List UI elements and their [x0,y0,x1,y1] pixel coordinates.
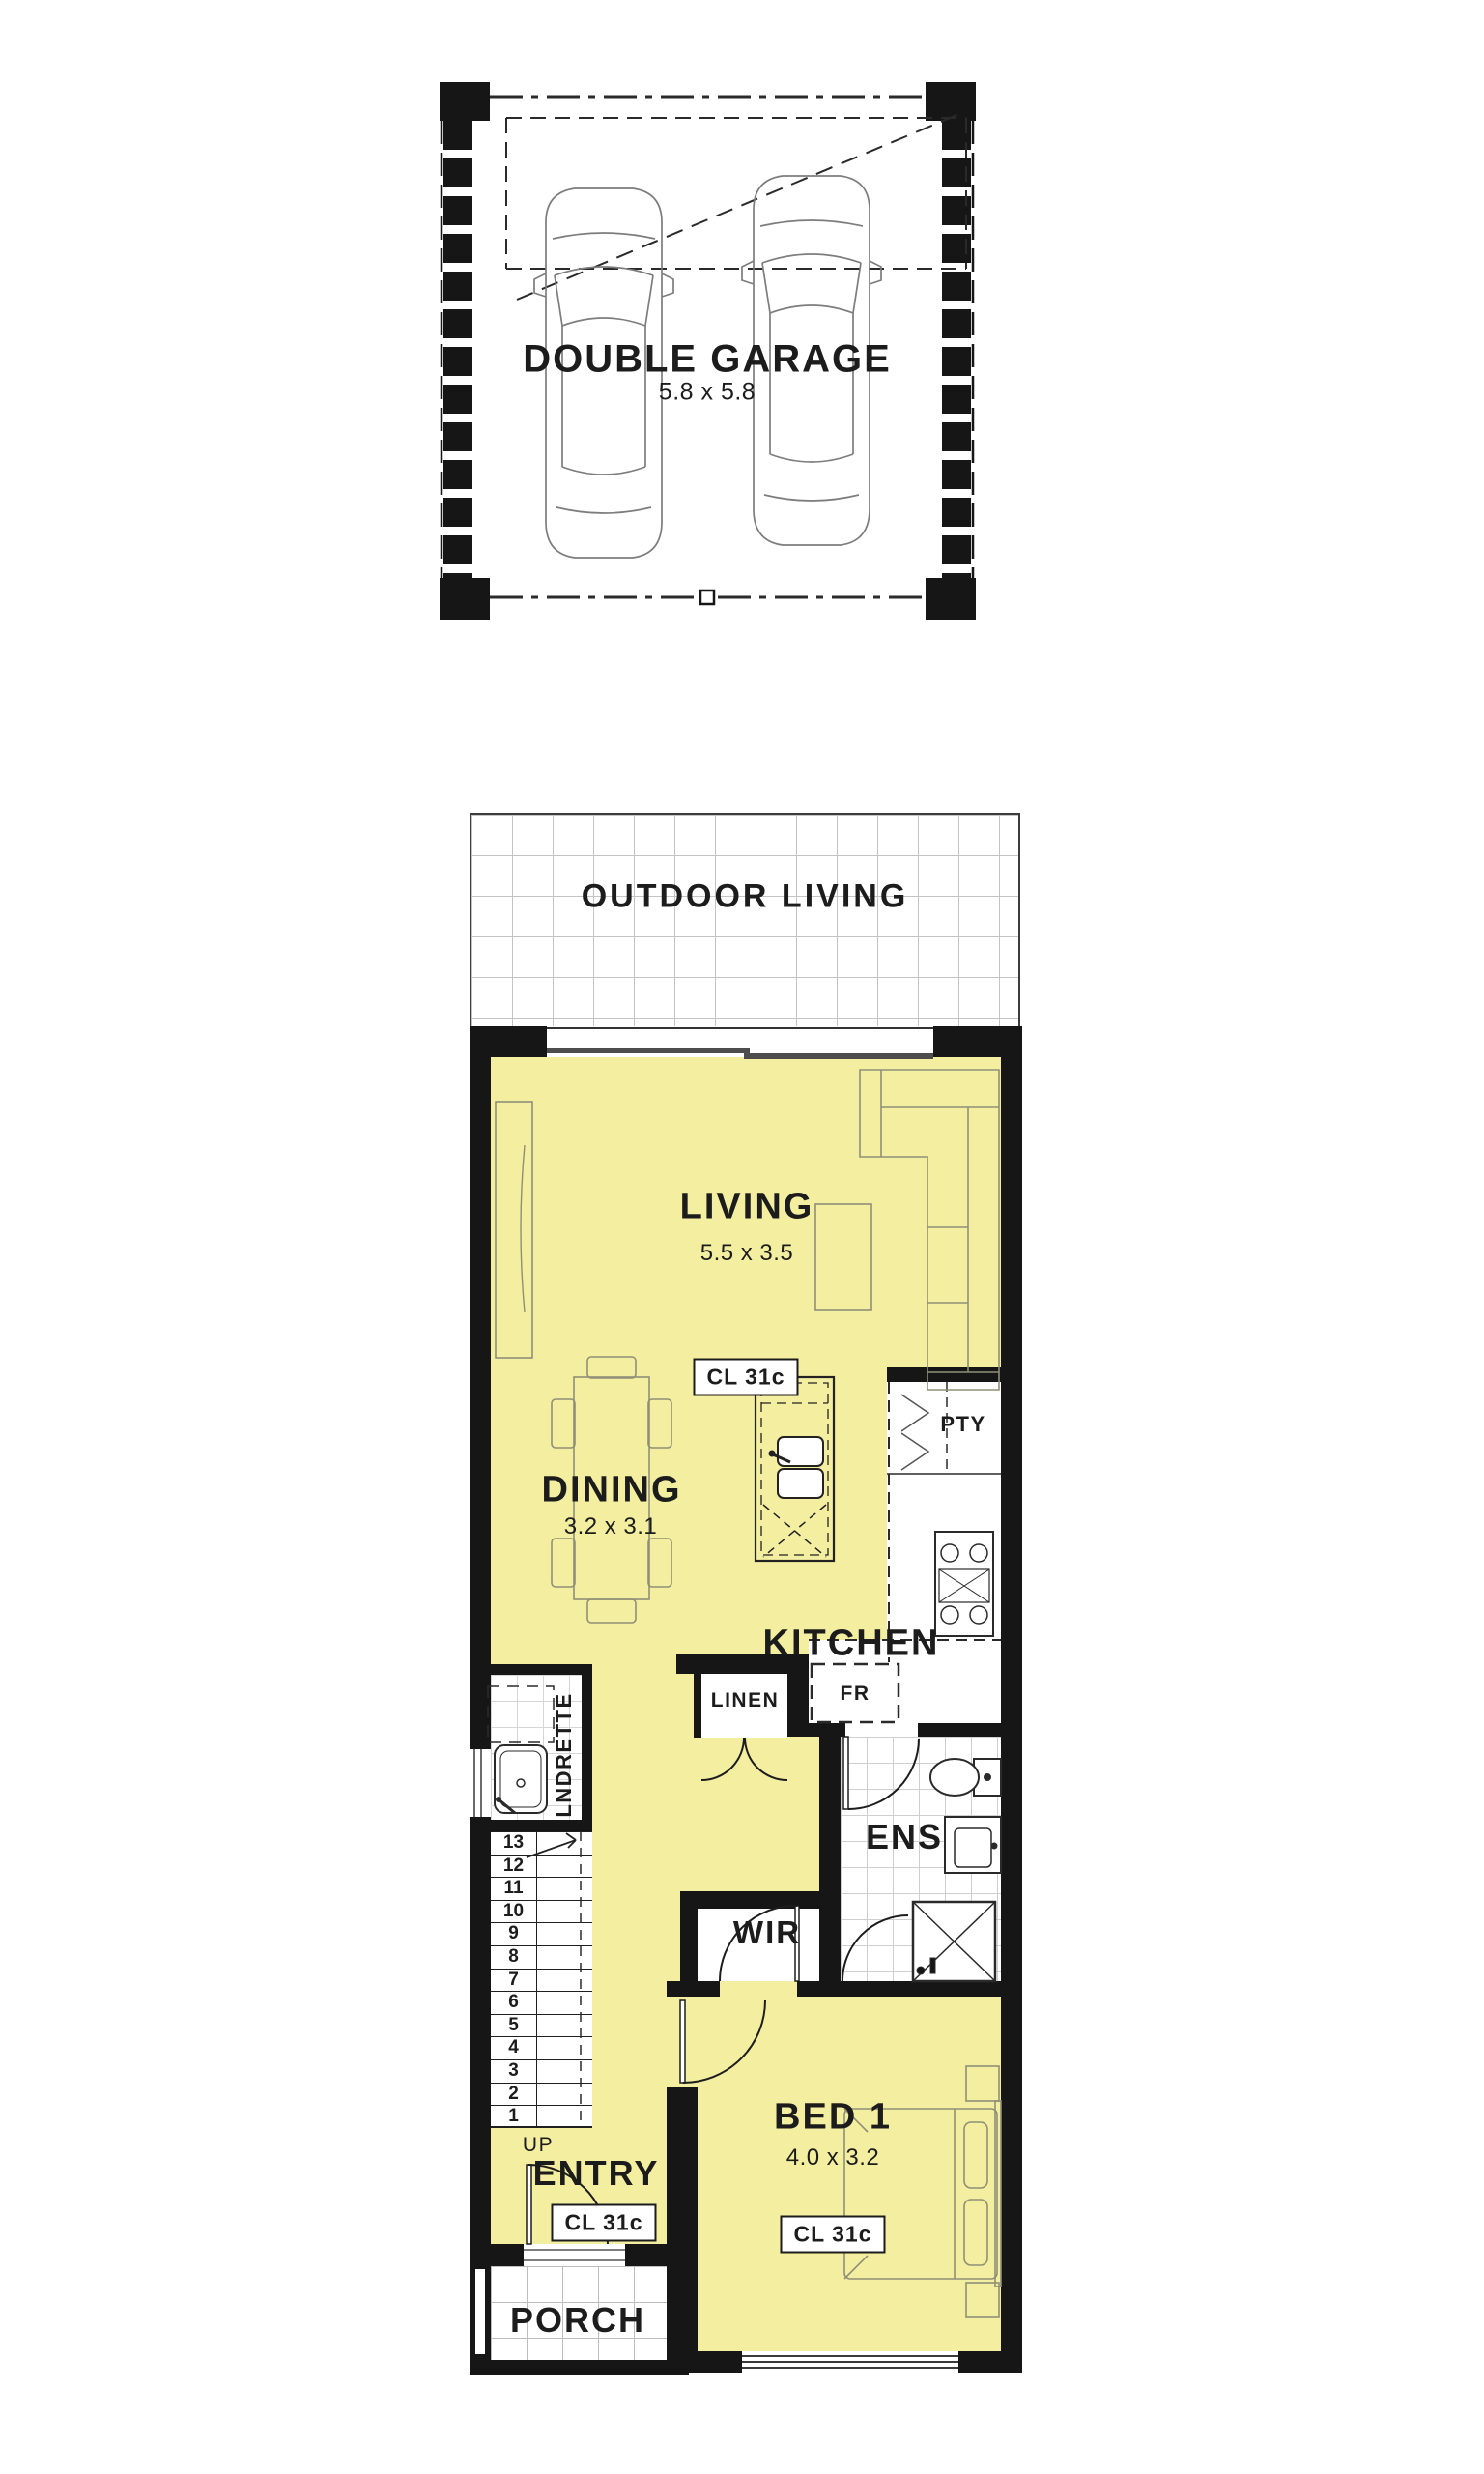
stair-tread: 4 [491,2036,592,2059]
pantry-label: PTY [940,1412,985,1437]
fridge-label: FR [841,1683,870,1706]
stair-tread: 13 [491,1831,592,1855]
bed1-dims: 4.0 x 3.2 [786,2144,880,2172]
stair-tread: 5 [491,2014,592,2037]
floor-plan: 13121110987654321 [0,0,1484,2474]
outdoor-living-label: OUTDOOR LIVING [582,878,909,916]
entry-ceiling-badge: CL 31c [551,2204,656,2242]
bed1-label: BED 1 [774,2097,892,2139]
bed1-ceiling-badge: CL 31c [780,2216,885,2254]
dining-label: DINING [542,1470,682,1511]
outdoor-living-area [470,813,1020,1026]
stair-tread: 11 [491,1877,592,1900]
sliding-door [547,1048,750,1053]
garage-dims: 5.8 x 5.8 [659,379,756,407]
wir-label: WIR [733,1914,801,1951]
ensuite-label: ENS [866,1817,943,1857]
stair-tread: 3 [491,2059,592,2083]
living-dims: 5.5 x 3.5 [700,1240,794,1267]
linen-label: LINEN [711,1689,780,1712]
stair-tread: 10 [491,1900,592,1923]
dining-dims: 3.2 x 3.1 [564,1513,658,1540]
living-label: LIVING [680,1187,814,1228]
stair-tread: 2 [491,2083,592,2106]
stair-tread: 1 [491,2105,592,2128]
stair-tread: 12 [491,1855,592,1878]
laundrette-label: LNDRETTE [552,1692,577,1817]
stair-tread: 6 [491,1991,592,2014]
ensuite-area [841,1737,1001,1981]
kitchen-label: KITCHEN [763,1624,940,1665]
garage-door-outline [506,118,966,269]
living-ceiling-badge: CL 31c [693,1359,798,1396]
stair-tread: 8 [491,1945,592,1969]
entry-label: ENTRY [533,2153,660,2194]
stair-treads: 13121110987654321 [491,1831,592,2128]
stair-tread: 9 [491,1922,592,1945]
staircase: 13121110987654321 [491,1831,592,2128]
porch-label: PORCH [510,2300,645,2341]
garage-label: DOUBLE GARAGE [523,338,892,382]
stair-tread: 7 [491,1969,592,1992]
